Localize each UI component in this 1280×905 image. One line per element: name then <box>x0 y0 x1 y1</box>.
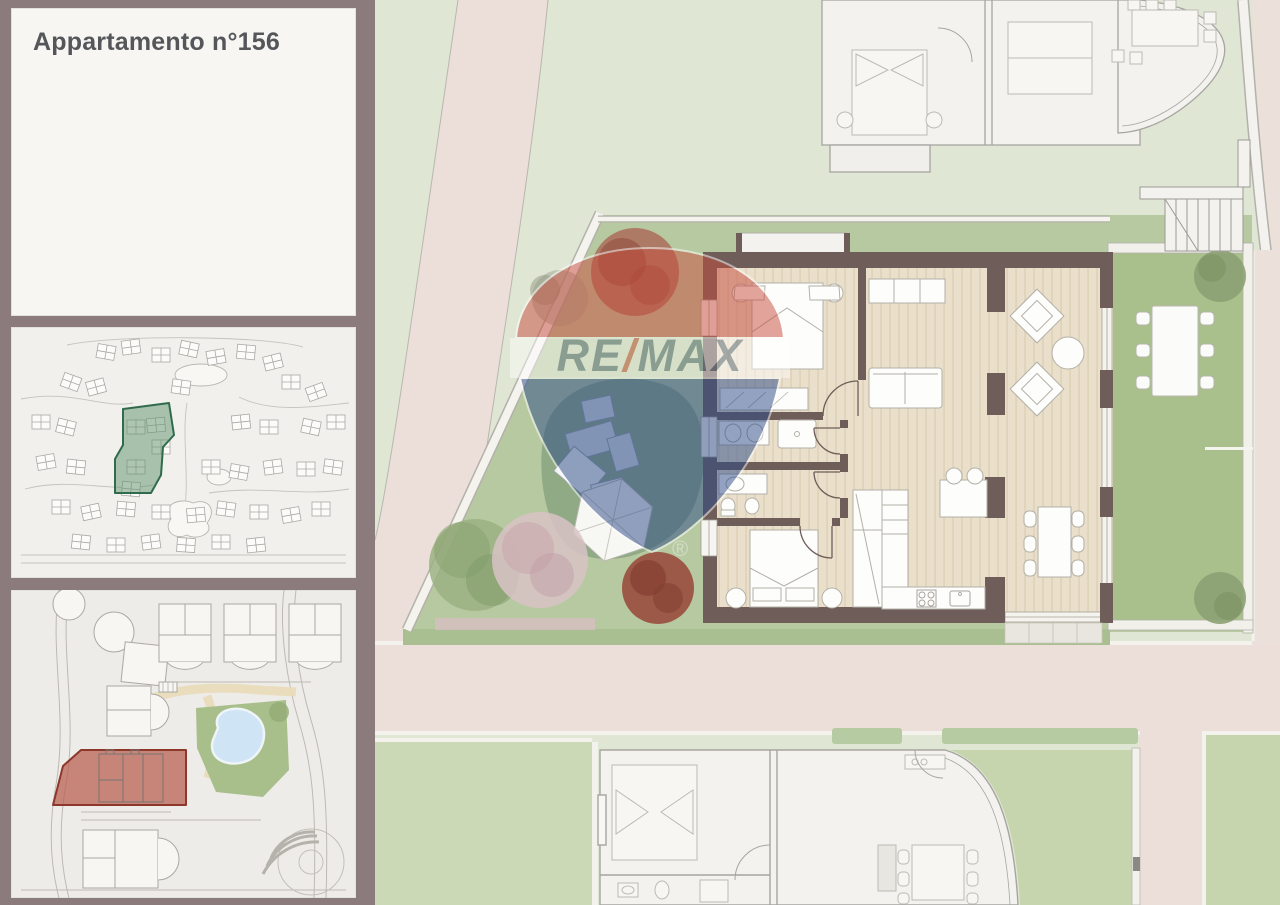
stool <box>967 468 983 484</box>
floorplan-sheet: Appartamento n°156 <box>0 0 1280 905</box>
registered-mark: ® <box>672 536 688 561</box>
dining-table <box>1038 507 1071 577</box>
apartment-title: Appartamento n°156 <box>11 8 356 57</box>
bottom-road <box>375 641 1280 735</box>
entry-paving <box>1005 623 1102 643</box>
hall-wardrobe <box>869 279 945 303</box>
siteplan-green-area <box>196 700 289 797</box>
pouf <box>726 588 746 608</box>
garden-bush-bottom <box>1194 572 1246 624</box>
masterplan-map <box>11 327 356 578</box>
pouf <box>822 588 842 608</box>
title-panel: Appartamento n°156 <box>11 8 356 316</box>
tree-pink <box>492 512 588 608</box>
bottom-right-garden <box>1140 731 1280 905</box>
remax-logo-text: RE/MAX <box>556 330 744 381</box>
kitchen-island <box>940 480 987 517</box>
stool <box>946 468 962 484</box>
outdoor-dining-table <box>1136 306 1214 396</box>
tree-red <box>622 552 694 624</box>
siteplan-detail-map <box>11 590 356 898</box>
siteplan-highlight-lot <box>53 750 186 805</box>
dining-furniture <box>1024 507 1084 577</box>
siteplan-plaza <box>263 829 344 895</box>
private-garden <box>1108 243 1253 633</box>
pool <box>212 709 264 764</box>
masterplan-panel <box>11 327 356 578</box>
coffee-table <box>1052 337 1084 369</box>
neighbor-unit-bottom <box>598 728 1140 905</box>
bidet <box>745 498 759 514</box>
main-plan-svg: RE/MAX ® <box>375 0 1280 905</box>
garden-bush-top <box>1194 250 1246 302</box>
bottom-left-lawn <box>375 738 598 905</box>
siteplan-detail-panel <box>11 590 356 898</box>
main-plan-area: RE/MAX ® <box>375 0 1280 905</box>
